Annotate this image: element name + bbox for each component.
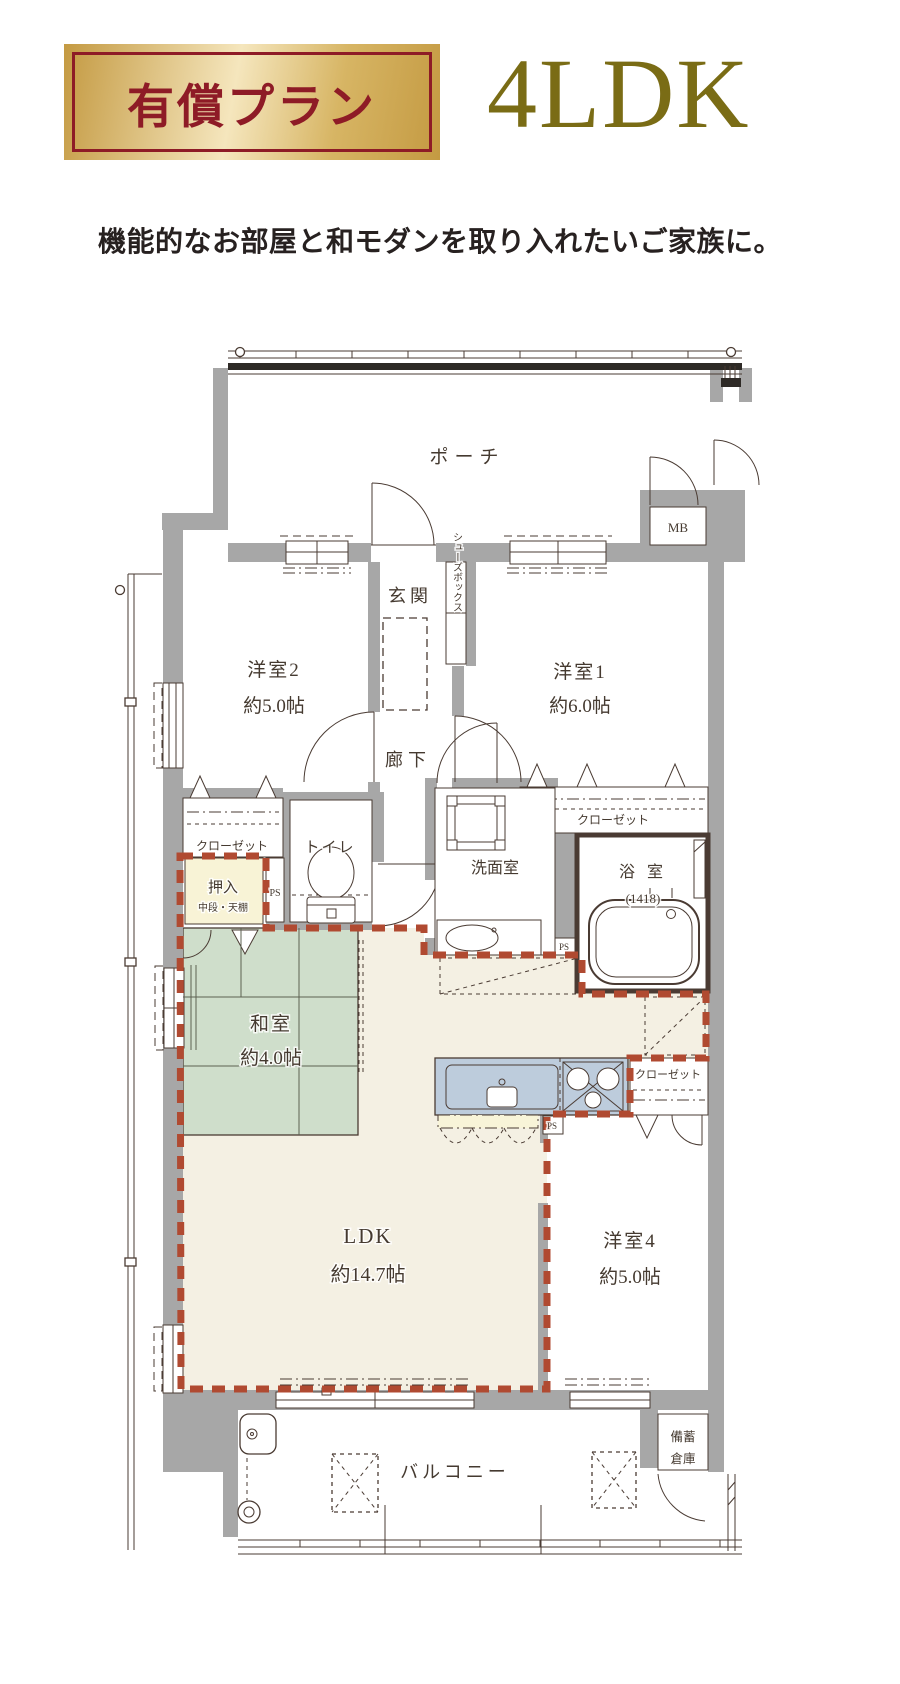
washitsu-label: 和室 [250,1013,292,1035]
closet-room1-label: クローゼット [577,813,649,827]
room2-label: 洋室2 [247,659,301,681]
room4-size: 約5.0帖 [599,1266,661,1288]
ps-label-1: PS [269,888,280,899]
washitsu-size: 約4.0帖 [240,1047,302,1069]
porch-railing [228,348,742,388]
genkan-label: 玄関 [388,586,432,606]
toilet-label: トイレ [304,840,355,856]
bathroom-size: (1418) [626,891,661,906]
plan-subtitle: 機能的なお部屋と和モダンを取り入れたいご家族に。 [98,220,782,260]
vanity-sink [437,920,541,955]
washing-machine-pan [447,796,505,850]
storage-label-1: 備蓄 [670,1429,695,1444]
room4-label: 洋室4 [603,1230,657,1252]
ldk-label: LDK [343,1224,392,1248]
ps-label-2: PS [559,942,569,952]
toilet-room [290,800,372,923]
room2-size: 約5.0帖 [243,695,305,717]
oshiire-label: 押入 [208,879,238,896]
storage-label-2: 倉庫 [670,1451,695,1466]
room1-label: 洋室1 [553,661,607,683]
room1-size: 約6.0帖 [549,695,611,717]
bathroom [577,835,708,991]
floor-plan: ポーチ MB 玄関 シューズボックス 洋室2 約5.0帖 洋室1 約6.0帖 廊… [0,330,900,1684]
washroom-label: 洗面室 [471,859,519,877]
bathroom-label: 浴 室 [619,863,667,881]
shoes-box-label: シューズボックス [451,532,463,612]
mb-label: MB [668,520,689,535]
oshiire-note: 中段・天棚 [198,901,248,914]
plan-badge-border: 有償プラン [72,52,432,152]
balcony-label: バルコニー [400,1462,510,1482]
hallway-label: 廊下 [385,750,431,770]
plan-badge: 有償プラン [64,44,440,160]
page: 有償プラン 4LDK 機能的なお部屋と和モダンを取り入れたいご家族に。 [0,0,900,1684]
toilet-fixture [307,847,355,923]
porch-label: ポーチ [429,446,504,468]
slop-sink-icon [240,1414,276,1454]
plan-type-title: 4LDK [487,36,751,151]
plan-badge-label: 有償プラン [127,68,377,137]
closet-room2-label: クローゼット [196,839,268,853]
ldk-size: 約14.7帖 [331,1263,406,1286]
ps-label-3: PS [547,1121,557,1131]
closet-room4-label: クローゼット [635,1068,701,1081]
balcony-hatch-squares [332,1452,636,1512]
